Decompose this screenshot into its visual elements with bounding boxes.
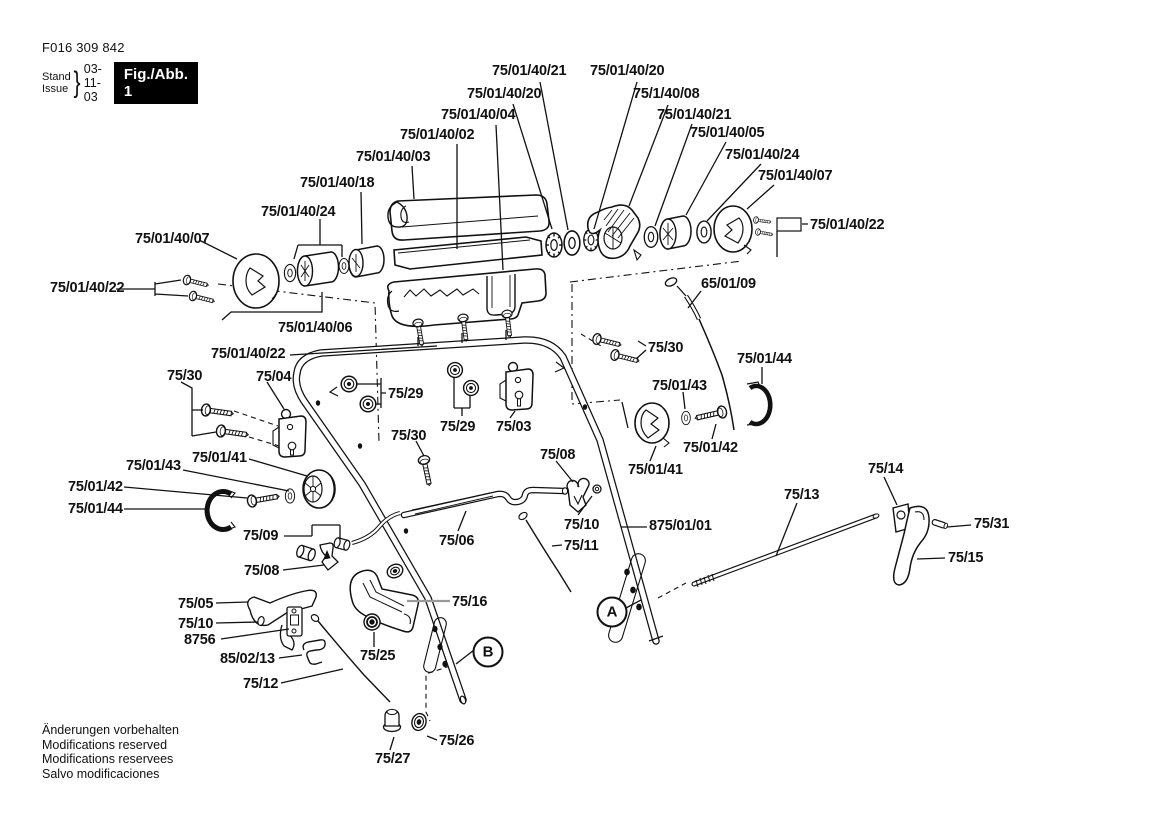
cam-lever	[588, 205, 641, 260]
part-label: 75/13	[784, 487, 819, 503]
issue-date: 03-11-03	[84, 62, 102, 104]
screw-30-mid	[418, 455, 435, 487]
pin-75-31	[932, 519, 949, 529]
part-label: 75/31	[974, 516, 1009, 532]
part-label: 65/01/09	[701, 276, 756, 292]
part-label: 75/01/40/22	[211, 346, 285, 362]
grip-cover	[388, 195, 549, 240]
small-screw-right-1	[753, 216, 771, 225]
washer-3	[697, 221, 711, 243]
nut-29-b	[360, 396, 376, 412]
part-label: 75/01/42	[68, 479, 123, 495]
part-label: 75/01/41	[192, 450, 247, 466]
screw-30-right-1	[592, 333, 623, 350]
screw-30-right-2	[610, 349, 641, 366]
washer-small-left-2	[339, 259, 349, 274]
part-label: 75/01/44	[737, 351, 792, 367]
roller-left-1	[298, 252, 339, 286]
part-label: 85/02/13	[220, 651, 275, 667]
note-line-en: Modifications reserved	[42, 738, 179, 753]
part-label: 75/01/40/22	[50, 280, 124, 296]
chevron-mark-left	[330, 387, 338, 396]
part-label: 75/10	[178, 616, 213, 632]
cable-75-11	[518, 511, 571, 592]
end-cap-left	[233, 254, 279, 308]
part-label: 75/30	[167, 368, 202, 384]
part-label: 75/29	[440, 419, 475, 435]
washer-small-left	[284, 264, 295, 281]
part-label: 875/01/01	[649, 518, 712, 534]
part-label: 75/11	[564, 538, 599, 554]
pulley-left	[303, 470, 335, 508]
screw-30-left-2	[216, 424, 249, 440]
part-label: 75/08	[540, 447, 575, 463]
issue-label: Issue	[42, 83, 71, 95]
part-label: 75/01/40/07	[758, 168, 832, 184]
cross-bar-75-06	[404, 488, 568, 515]
trigger-75-14-15	[893, 504, 948, 585]
nut-29-c	[448, 363, 463, 378]
part-label: 75/01/40/04	[441, 107, 515, 123]
part-label: 75/09	[243, 528, 278, 544]
bracket-75-04	[273, 410, 306, 458]
small-screw-right-2	[755, 228, 773, 238]
part-label: 75/26	[439, 733, 474, 749]
stand-label: Stand	[42, 71, 71, 83]
part-label: 75/04	[256, 369, 291, 385]
figure-badge: Fig./Abb. 1	[114, 62, 198, 104]
screw-pair-left-2	[188, 290, 215, 306]
guide-cup-right	[635, 403, 669, 447]
part-label: 75/27	[375, 751, 410, 767]
lever-75-16	[350, 562, 418, 632]
grommet-75-26	[410, 712, 428, 732]
part-label: 75/06	[439, 533, 474, 549]
part-label: 75/16	[452, 594, 487, 610]
screw-30-left-1	[201, 403, 234, 419]
modifications-note: Änderungen vorbehalten Modifications res…	[42, 723, 179, 781]
part-label: 75/01/40/20	[590, 63, 664, 79]
note-line-es: Salvo modificaciones	[42, 767, 179, 782]
part-label: 75/01/40/07	[135, 231, 209, 247]
part-label: 75/01/41	[628, 462, 683, 478]
part-label: 75/29	[388, 386, 423, 402]
part-label: 75/25	[360, 648, 395, 664]
part-label: 75/12	[243, 676, 278, 692]
part-label: 75/14	[868, 461, 903, 477]
part-label: 75/01/40/06	[278, 320, 352, 336]
end-cap-right	[714, 206, 752, 254]
clamp-set-75-09	[295, 513, 400, 570]
part-label: 75/01/40/20	[467, 86, 541, 102]
part-label: 75/01/40/22	[810, 217, 884, 233]
part-label: 75/05	[178, 596, 213, 612]
screw-pair-left-1	[182, 274, 209, 290]
part-label: 75/01/40/02	[400, 127, 474, 143]
part-label: 75/1/40/08	[633, 86, 700, 102]
part-label: 75/01/42	[683, 440, 738, 456]
washer-1	[564, 231, 580, 255]
bolt-75-27	[384, 709, 401, 731]
view-marker-A: A	[597, 597, 628, 628]
roller-right	[660, 216, 691, 249]
issue-row: Stand Issue } 03-11-03 Fig./Abb. 1	[42, 62, 198, 104]
leader-lines	[116, 82, 971, 750]
part-label: 75/01/43	[652, 378, 707, 394]
note-line-de: Änderungen vorbehalten	[42, 723, 179, 738]
part-label: 75/15	[948, 550, 983, 566]
roller-left-2	[349, 246, 384, 277]
washer-2	[644, 227, 658, 248]
part-label: 75/01/44	[68, 501, 123, 517]
parts-diagram-page: F016 309 842 Stand Issue } 03-11-03 Fig.…	[0, 0, 1168, 825]
header: F016 309 842 Stand Issue } 03-11-03 Fig.…	[42, 40, 125, 55]
sleeve-outline	[777, 218, 801, 231]
part-label: 75/03	[496, 419, 531, 435]
clip-cap-right	[747, 382, 770, 425]
part-label: 75/01/40/24	[261, 204, 335, 220]
part-label: 75/01/40/05	[690, 125, 764, 141]
part-label: 75/10	[564, 517, 599, 533]
document-number: F016 309 842	[42, 40, 125, 55]
rod-75-13	[694, 513, 880, 587]
part-label: 75/01/40/24	[725, 147, 799, 163]
part-label: 75/01/40/18	[300, 175, 374, 191]
grip-bar	[394, 237, 542, 269]
view-marker-B: B	[473, 637, 504, 668]
nut-29-a	[341, 376, 357, 392]
issue-labels: Stand Issue	[42, 71, 71, 95]
part-label: 75/30	[391, 428, 426, 444]
part-label: 8756	[184, 632, 215, 648]
nut-29-d	[464, 381, 479, 396]
brace-glyph: }	[73, 66, 80, 100]
part-label: 75/01/40/21	[492, 63, 566, 79]
part-label: 75/30	[648, 340, 683, 356]
part-label: 75/01/40/03	[356, 149, 430, 165]
part-label: 75/01/43	[126, 458, 181, 474]
part-label: 75/01/40/21	[657, 107, 731, 123]
serrated-washer-1	[546, 233, 562, 257]
part-label: 75/08	[244, 563, 279, 579]
bracket-75-03	[500, 363, 533, 411]
diagram-line-art	[0, 0, 1168, 825]
note-line-fr: Modifications reservees	[42, 752, 179, 767]
